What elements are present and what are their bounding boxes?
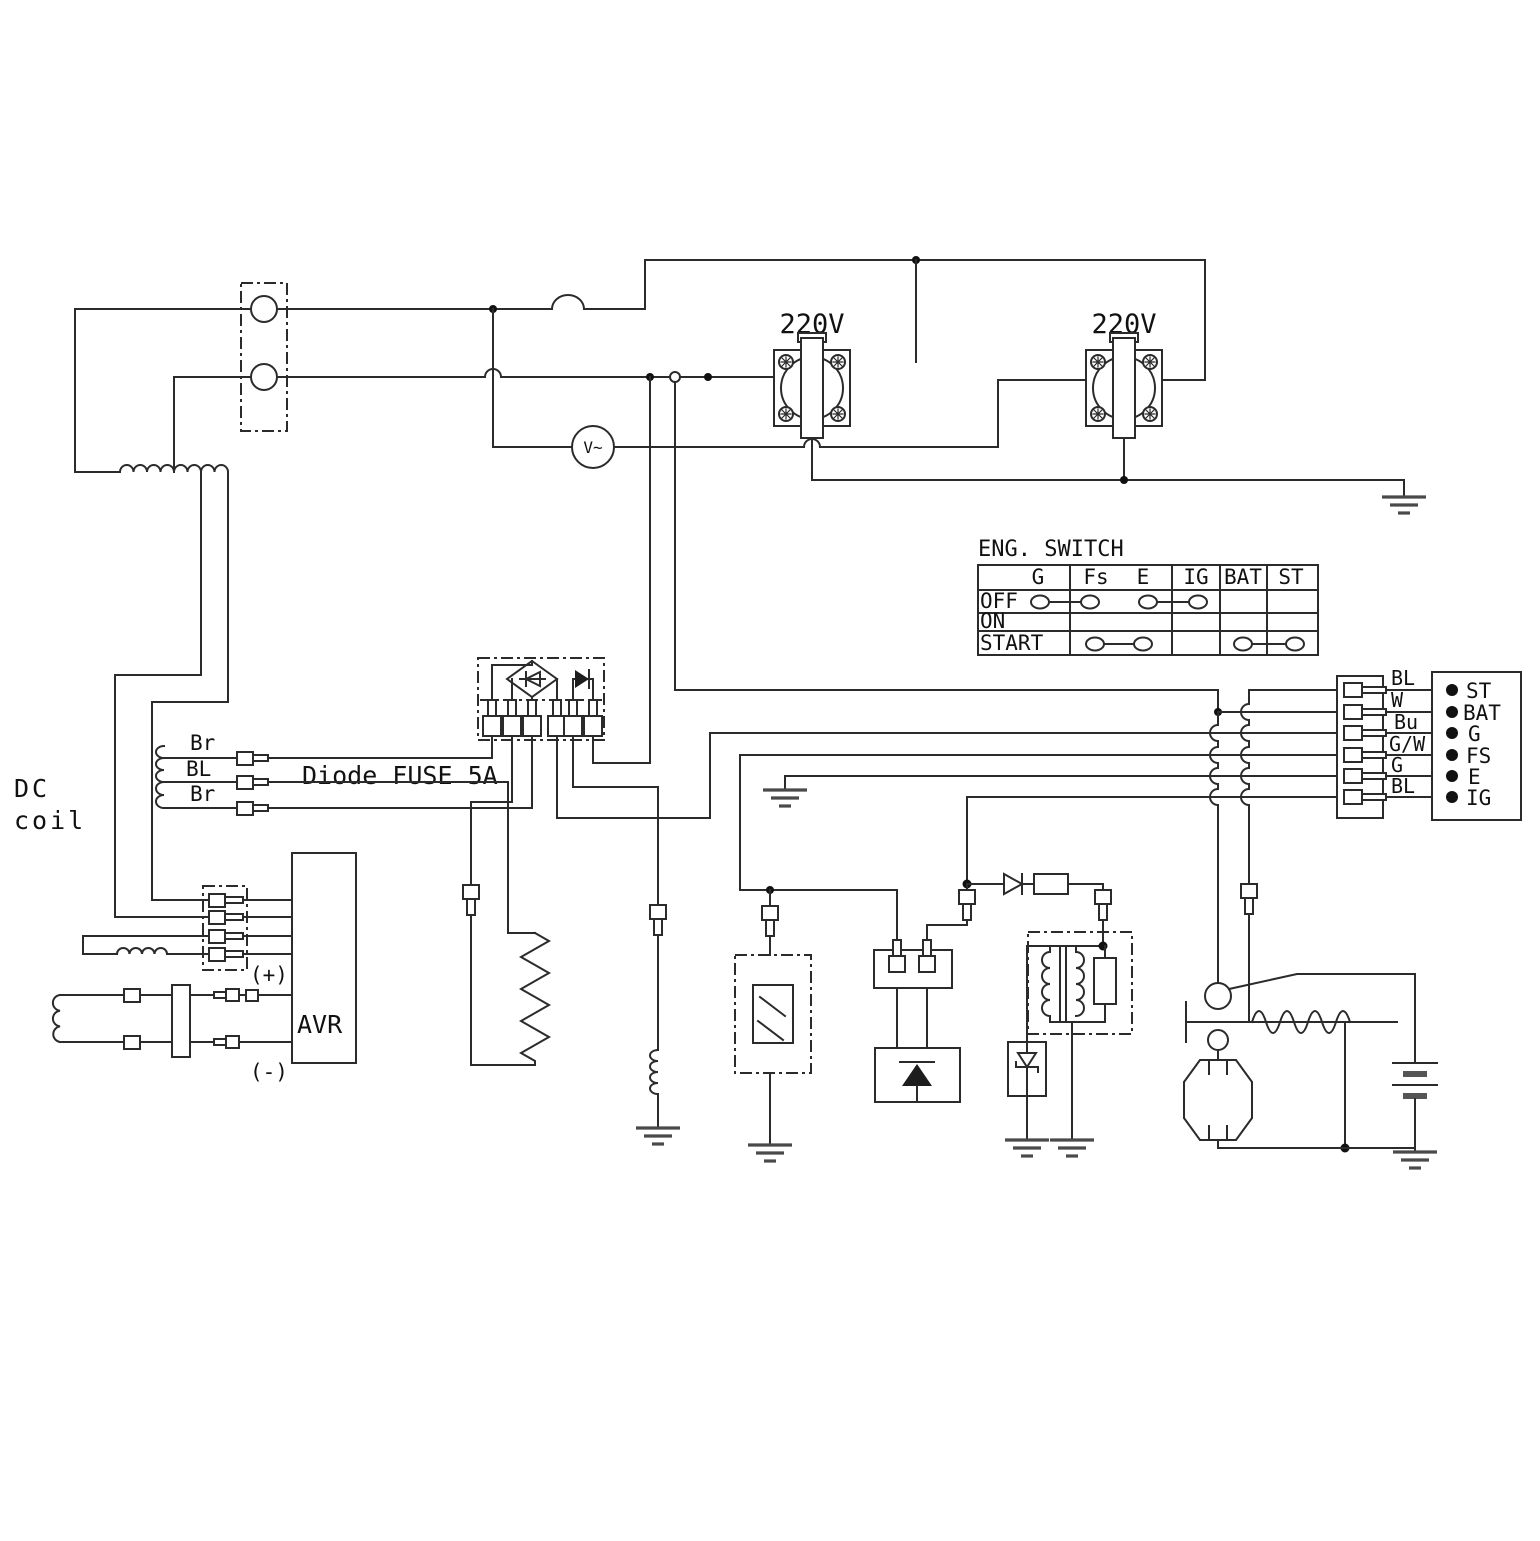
col-ig: IG <box>1183 565 1208 589</box>
wire-label-br-bot: Br <box>190 782 215 806</box>
avr-minus-label: (-) <box>250 1060 288 1084</box>
ac-line-1 <box>277 256 1205 380</box>
contact-links-off <box>1031 596 1207 609</box>
rectifier-pins <box>483 700 602 736</box>
ignition-coil <box>1027 932 1132 1156</box>
outlet-220v-right: 220V <box>1086 309 1162 438</box>
outlet-ground-rail <box>812 438 1426 513</box>
engine-switch-block: ST BAT G FS E IG <box>1432 672 1521 820</box>
row-start: START <box>980 631 1044 655</box>
diode-fuse-label: Diode FUSE 5A <box>302 761 498 790</box>
harness-label-bu: Bu <box>1394 710 1418 734</box>
harness-wires <box>675 690 1345 1022</box>
rectifier-module <box>478 658 604 740</box>
harness-label-w: W <box>1391 688 1404 712</box>
avr-module: AVR <box>292 853 356 1063</box>
wiring-diagram: V~ 220V 220V <box>0 0 1540 1541</box>
oil-sensor <box>735 755 897 1161</box>
ignition-diode-icon <box>1004 874 1022 894</box>
harness-label-bl-1: BL <box>1391 666 1415 690</box>
rectifier-wiring <box>463 733 710 1144</box>
wiring-diagram-page: V~ 220V 220V <box>0 0 1540 1541</box>
voltmeter: V~ <box>572 426 614 468</box>
contact-links-start <box>1086 638 1304 651</box>
eng-switch-title: ENG. SWITCH <box>978 537 1124 562</box>
col-st: ST <box>1278 565 1304 589</box>
starter-motor <box>1184 1030 1415 1148</box>
terminal-ig: IG <box>1466 786 1491 810</box>
generator-output-connector <box>241 283 287 431</box>
ignition-feed <box>959 797 1111 946</box>
ground-symbol-g-wire <box>763 790 807 806</box>
ground-symbol-zener <box>1005 1140 1049 1156</box>
resistor <box>521 933 549 1065</box>
outlet-220v-left: 220V <box>774 309 850 438</box>
col-fs: Fs <box>1083 565 1108 589</box>
ground-symbol-oil-sensor <box>748 1145 792 1161</box>
stator-main-winding <box>75 309 251 917</box>
pulser-connector <box>874 920 967 988</box>
col-g: G <box>1032 565 1045 589</box>
dc-coil-label-1: DC <box>14 774 50 803</box>
ground-symbol-ign-coil <box>1050 1140 1094 1156</box>
wire-label-bl-mid: BL <box>186 757 211 781</box>
dc-coil-terminals <box>237 752 268 815</box>
exciter-winding <box>83 936 209 954</box>
col-bat: BAT <box>1224 565 1262 589</box>
avr-label: AVR <box>297 1010 343 1039</box>
scr-module <box>875 988 960 1102</box>
harness-connector: BL W Bu G/W G BL <box>1337 666 1432 818</box>
avr-connector <box>203 886 292 970</box>
ground-symbol-top-right <box>1382 497 1426 513</box>
terminal-st: ST <box>1466 679 1492 703</box>
ground-symbol-lighting-coil <box>636 1128 680 1144</box>
field-coil-brush-assembly: (+) (-) <box>53 963 292 1084</box>
eng-switch-table: ENG. SWITCH G Fs E IG BAT ST OFF ON STAR… <box>978 537 1318 655</box>
dc-coil-label-2: coil <box>14 806 86 835</box>
bridge-diode-icon <box>520 672 545 686</box>
ground-symbol-battery <box>1393 1152 1437 1168</box>
voltmeter-label: V~ <box>583 438 602 457</box>
wire-label-br-top: Br <box>190 731 215 755</box>
ac-line-2 <box>277 369 774 382</box>
row-on: ON <box>980 609 1005 633</box>
harness-label-bl-2: BL <box>1391 774 1415 798</box>
battery <box>1393 1063 1437 1168</box>
terminal-g: G <box>1468 722 1481 746</box>
col-e: E <box>1137 565 1150 589</box>
starter-relay <box>1186 974 1415 1153</box>
avr-plus-label: (+) <box>250 963 288 987</box>
